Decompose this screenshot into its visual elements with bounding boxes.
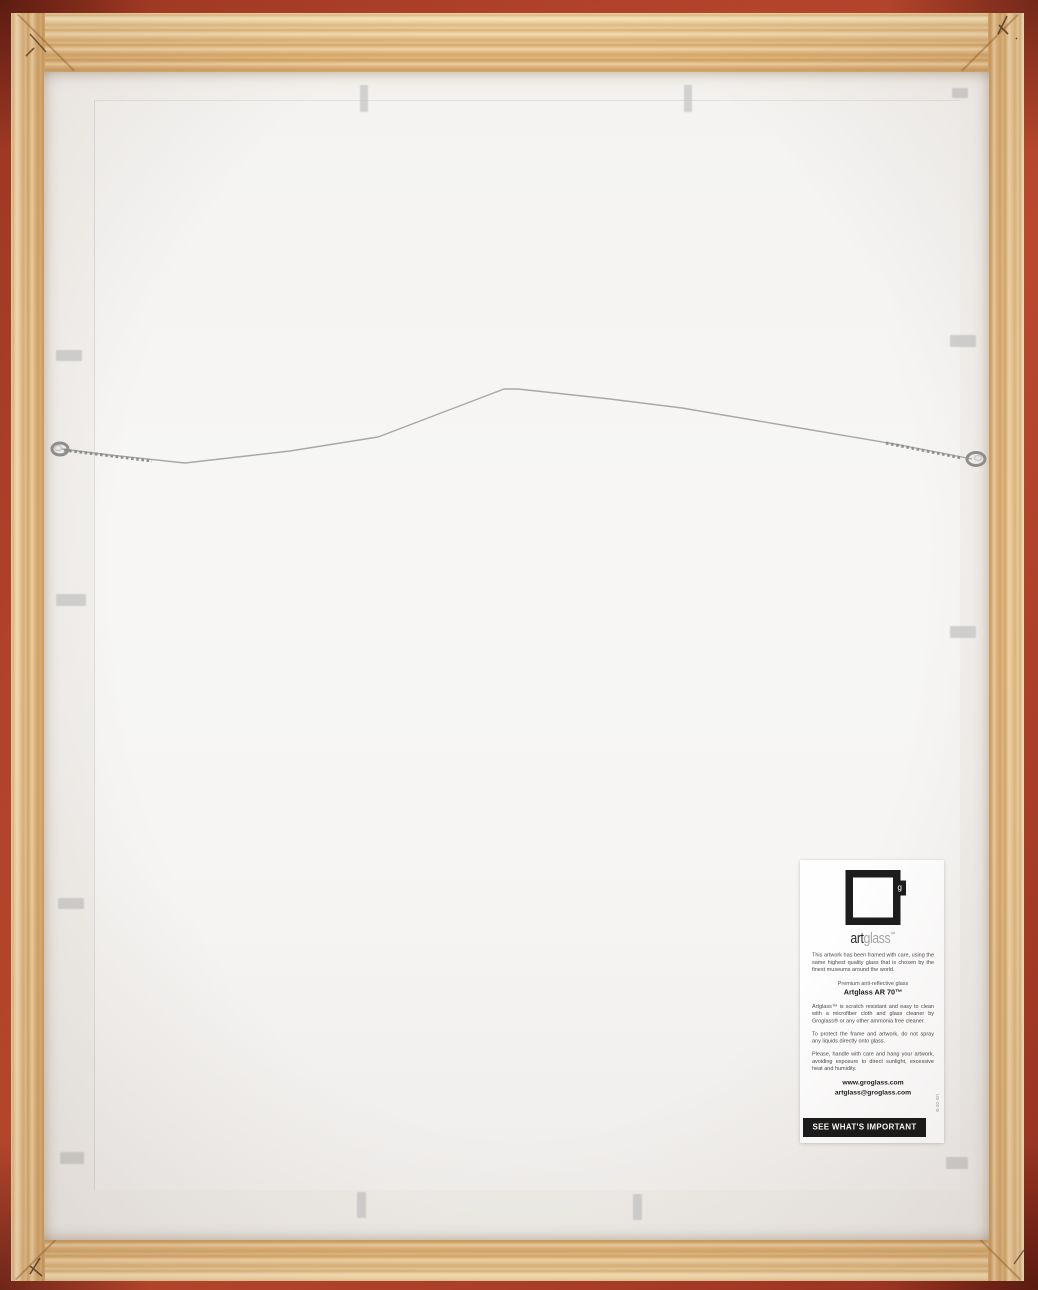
wordmark-art: art — [851, 930, 864, 947]
label-item-code: UE-02-B — [934, 1094, 940, 1112]
framing-tab — [56, 350, 82, 361]
framing-tab — [357, 1192, 366, 1218]
email-address: artglass@groglass.com — [812, 1088, 934, 1098]
product-name: Artglass AR 70™ — [812, 988, 934, 998]
framing-tab — [946, 1157, 968, 1169]
care-handle-text: Please, handle with care and hang your a… — [812, 1050, 934, 1072]
care-cleaning-text: Artglass™ is scratch resistant and easy … — [812, 1003, 934, 1025]
framing-tab — [684, 85, 692, 112]
framing-tab — [952, 88, 968, 98]
wordmark-tm: ™ — [890, 931, 895, 938]
artglass-logo-icon: g — [846, 870, 901, 925]
framed-artwork-back-photo: g artglass™ This artwork has been framed… — [0, 0, 1038, 1290]
artglass-label-content: g artglass™ This artwork has been framed… — [800, 860, 944, 1143]
framing-tab — [60, 1152, 84, 1164]
slogan-text: SEE WHAT'S IMPORTANT — [812, 1122, 916, 1133]
framing-tab — [950, 626, 976, 638]
frame-wood-left — [11, 13, 45, 1281]
framing-tab — [58, 898, 84, 909]
label-intro-text: This artwork has been framed with care, … — [812, 952, 934, 974]
framing-tab — [360, 85, 368, 112]
website-url: www.groglass.com — [812, 1077, 934, 1087]
artglass-logo-g-tab: g — [894, 881, 907, 896]
frame-wood-right — [988, 13, 1024, 1281]
frame-wood-bottom — [11, 1239, 1024, 1281]
framing-tab — [633, 1194, 642, 1220]
artglass-label: g artglass™ This artwork has been framed… — [800, 860, 944, 1143]
artglass-wordmark: artglass™ — [812, 931, 934, 946]
product-tagline: Premium anti-reflective glass — [812, 980, 934, 987]
framing-tab — [56, 594, 86, 606]
slogan-bar: SEE WHAT'S IMPORTANT — [803, 1118, 926, 1137]
care-protect-text: To protect the frame and artwork, do not… — [812, 1030, 934, 1045]
frame-wood-top — [11, 13, 1024, 73]
wordmark-glass: glass — [864, 930, 891, 947]
logo-letter: g — [898, 883, 902, 894]
framing-tab — [950, 335, 976, 347]
